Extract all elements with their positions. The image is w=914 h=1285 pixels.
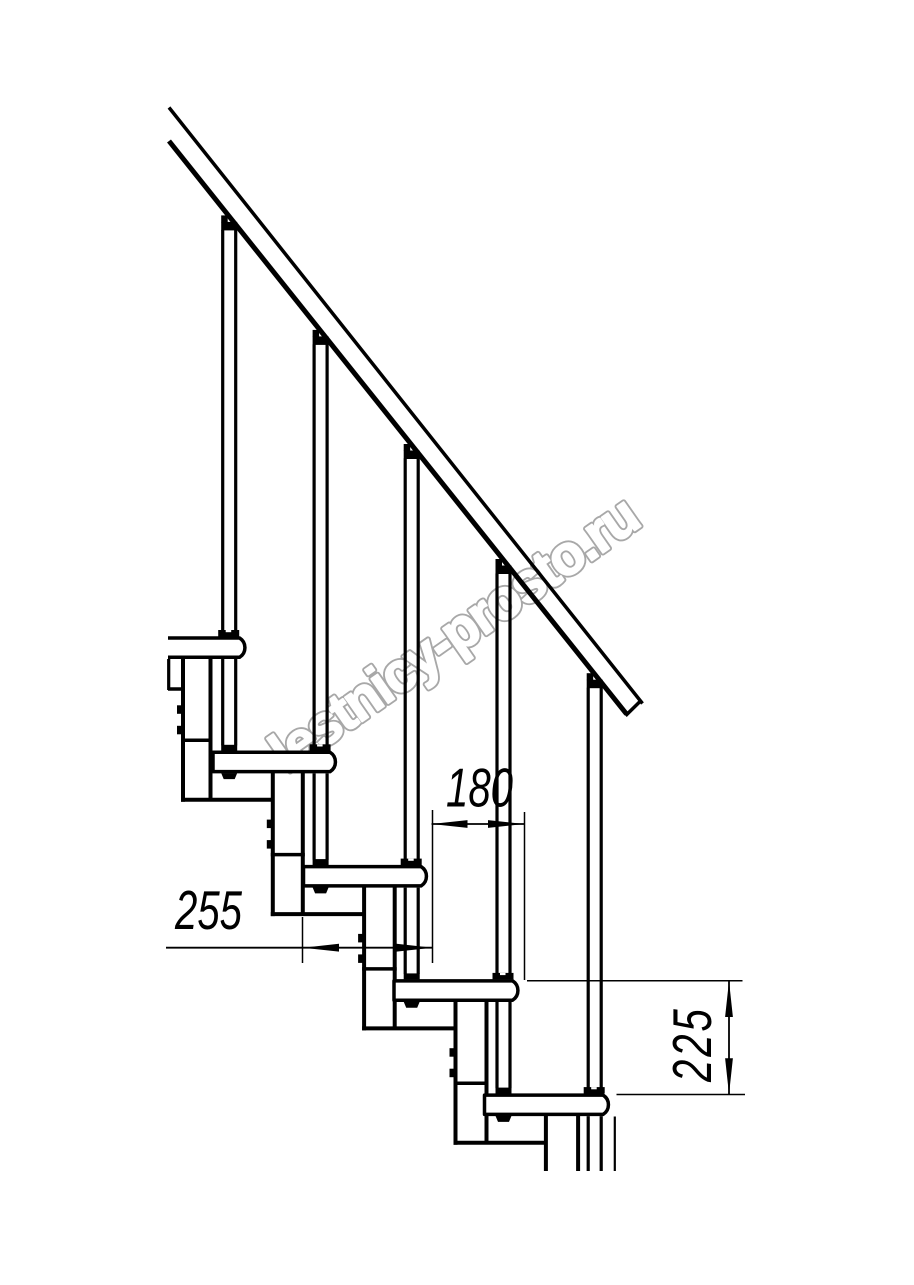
svg-text:lestnicy-prosto.ru: lestnicy-prosto.ru (258, 484, 649, 784)
svg-text:180: 180 (446, 757, 513, 819)
svg-text:225: 225 (662, 1006, 724, 1083)
svg-text:255: 255 (174, 880, 242, 942)
